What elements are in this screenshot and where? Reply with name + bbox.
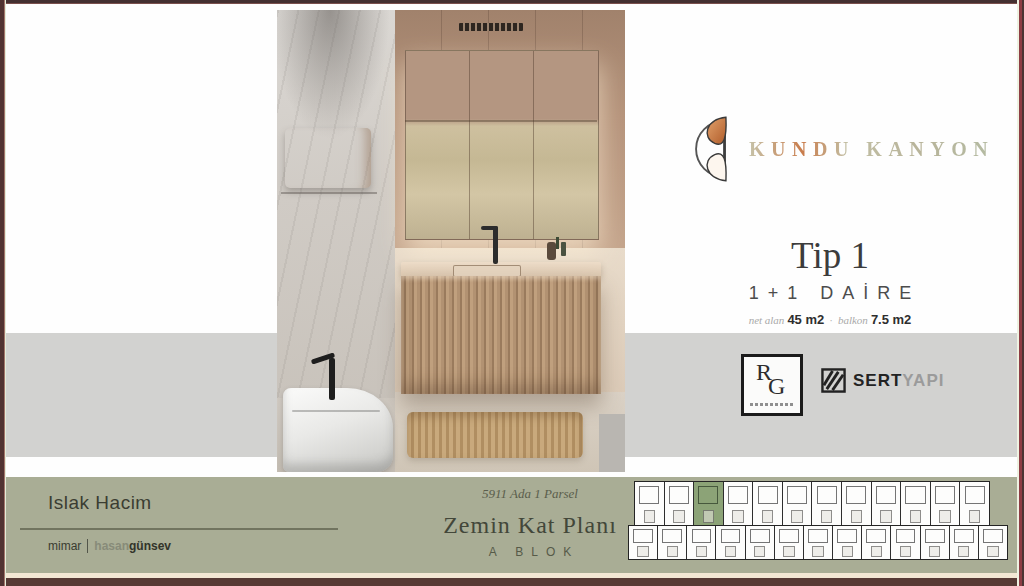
brochure-slide: KUNDU KANYON Tip 1 1+1 DAİRE net alan45 … xyxy=(0,0,1024,586)
rg-monogram-g: G xyxy=(768,373,785,400)
bidet-tap xyxy=(329,358,335,400)
rg-architect-logo: R G xyxy=(741,354,803,416)
unit-info: Tip 1 1+1 DAİRE net alan45 m2·balkon7.5 … xyxy=(695,234,965,327)
credit-first-name: hasan xyxy=(94,539,129,553)
sert-yapi-icon xyxy=(821,368,846,393)
floorplan-unit xyxy=(686,526,715,559)
towel-stack xyxy=(285,128,371,188)
credit-role: mimar xyxy=(48,539,81,553)
mirror-cabinet xyxy=(405,50,599,240)
floorplan-unit xyxy=(841,482,871,526)
floorplan-unit xyxy=(752,482,782,526)
rg-caption-line xyxy=(750,403,794,406)
area-separator: · xyxy=(829,314,833,326)
unit-layout: 1+1 DAİRE xyxy=(695,283,965,304)
right-gray-panel xyxy=(599,414,625,472)
floorplan-unit xyxy=(635,482,664,526)
frame-bottom xyxy=(0,578,1024,586)
floorplan-unit-highlighted xyxy=(693,482,723,526)
floorplan-unit xyxy=(871,482,901,526)
fluted-wood-vanity xyxy=(401,276,601,394)
plan-title-block: Zemin Kat Planı A BLOK xyxy=(405,498,655,559)
area-label-1: net alan xyxy=(749,314,785,326)
kundu-kanyon-logo-icon xyxy=(683,108,739,190)
floorplan-unit xyxy=(832,526,861,559)
toilet xyxy=(283,388,393,472)
floorplan-unit xyxy=(803,526,832,559)
floorplan-unit xyxy=(664,482,694,526)
bathroom-room xyxy=(395,10,625,472)
floorplan-unit xyxy=(978,526,1007,559)
unit-type-title: Tip 1 xyxy=(695,234,965,277)
bathroom-photo xyxy=(277,10,625,472)
towel-rail xyxy=(281,192,377,194)
block-label: A BLOK xyxy=(405,545,655,559)
footer-divider-line xyxy=(20,528,338,530)
floorplan-unit xyxy=(861,526,890,559)
floorplan-unit xyxy=(629,526,657,559)
floorplan-unit xyxy=(715,526,744,559)
building-floorplan xyxy=(628,481,1008,560)
room-title: Islak Hacim xyxy=(48,492,152,514)
frame-left xyxy=(0,0,6,586)
floorplan-unit xyxy=(745,526,774,559)
brand-name: KUNDU KANYON xyxy=(749,138,994,161)
floorplan-unit xyxy=(723,482,753,526)
plan-title: Zemin Kat Planı xyxy=(405,512,655,539)
architect-credit: mimar hasangünsev xyxy=(48,539,171,553)
floorplan-unit xyxy=(890,526,919,559)
unit-areas: net alan45 m2·balkon7.5 m2 xyxy=(695,312,965,327)
floorplan-unit xyxy=(774,526,803,559)
credit-divider xyxy=(87,539,88,553)
credit-last-name: günsev xyxy=(129,539,171,553)
floorplan-unit xyxy=(811,482,841,526)
sert-name-light: YAPI xyxy=(902,371,944,390)
floorplan-unit xyxy=(900,482,930,526)
cabinet-grille xyxy=(459,23,523,31)
area-value-2: 7.5 m2 xyxy=(871,312,911,327)
brand-logo-block: KUNDU KANYON xyxy=(683,108,994,190)
right-wood-panel xyxy=(595,10,625,428)
area-value-1: 45 m2 xyxy=(787,312,824,327)
frame-right xyxy=(1017,0,1024,586)
wooden-bath-mat xyxy=(407,412,583,458)
frame-top xyxy=(0,0,1024,4)
floorplan-bottom-row xyxy=(628,525,1008,560)
decor-vase xyxy=(547,242,556,260)
floorplan-unit xyxy=(930,482,960,526)
sert-name-bold: SERT xyxy=(853,371,902,390)
floorplan-unit xyxy=(959,482,989,526)
area-label-2: balkon xyxy=(838,314,868,326)
sert-yapi-logo: SERTYAPI xyxy=(821,368,944,393)
faucet xyxy=(493,226,498,264)
floorplan-unit xyxy=(920,526,949,559)
floorplan-top-row xyxy=(634,481,990,527)
floorplan-unit xyxy=(657,526,686,559)
cabinet-split-line xyxy=(405,120,597,122)
floorplan-unit xyxy=(949,526,978,559)
floorplan-unit xyxy=(782,482,812,526)
